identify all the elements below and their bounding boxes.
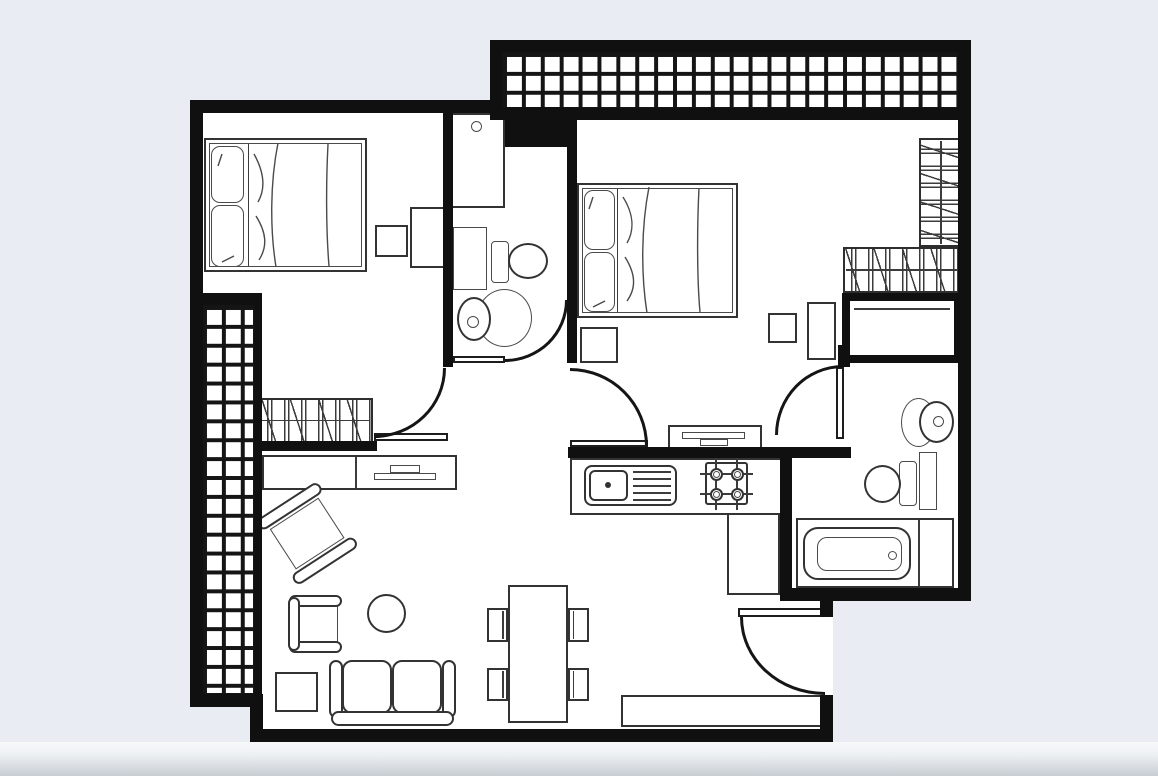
sofa-backrest <box>331 711 454 726</box>
wc-door-leaf <box>453 356 505 363</box>
dining-chair <box>487 668 508 701</box>
tv-icon <box>700 439 728 446</box>
wall <box>190 694 263 707</box>
chair-back <box>502 611 504 639</box>
stove-grate <box>736 457 738 510</box>
toilet-bathroom-tank <box>899 461 917 506</box>
wall <box>820 695 833 742</box>
sofa-armrest <box>329 660 343 718</box>
dining-chair <box>568 668 589 701</box>
square-table <box>275 672 318 712</box>
entrance-door-leaf <box>738 608 825 617</box>
sink-wc-drain <box>467 316 479 328</box>
wall <box>202 293 262 305</box>
balcony-top-tiles <box>502 52 958 108</box>
wall <box>567 113 577 363</box>
toilet-wc-tank <box>491 241 509 283</box>
wall <box>443 113 453 367</box>
armchair-backrest <box>288 597 300 651</box>
bookshelf-rail <box>262 420 370 422</box>
stove-grate <box>700 493 753 495</box>
tv-icon <box>682 432 745 439</box>
nightstand <box>580 327 618 363</box>
wardrobe-horizontal-rail <box>846 269 960 271</box>
dining-chair <box>487 608 508 642</box>
nightstand <box>375 225 408 257</box>
toilet-wc-bowl <box>508 243 548 279</box>
dining-table <box>508 585 568 723</box>
sofa-cushion <box>342 660 392 714</box>
sofa-armrest <box>442 660 456 718</box>
chair-back <box>573 611 575 639</box>
dresser <box>410 207 445 268</box>
chair-back <box>573 671 575 698</box>
wall <box>254 303 262 694</box>
wardrobe-vertical-rail <box>940 141 942 244</box>
kitchen-counter <box>727 513 780 595</box>
armchair-seat <box>298 605 338 645</box>
entry-console <box>621 695 827 727</box>
round-table <box>367 594 406 633</box>
wall <box>780 588 971 601</box>
wall <box>958 40 971 601</box>
page-bottom-band <box>0 742 1158 776</box>
wall <box>490 40 971 52</box>
tv-sideboard-divider <box>355 457 357 488</box>
wall <box>250 729 833 742</box>
washing-machine-door <box>471 121 482 132</box>
kitchen-sink-drainer-line <box>633 485 671 487</box>
dining-chair <box>568 608 589 642</box>
stool <box>768 313 797 343</box>
floor-plan <box>0 0 1158 776</box>
burner-inner <box>713 491 720 498</box>
bed-right-blanket-folds <box>577 183 738 318</box>
wall <box>490 40 502 120</box>
burner-inner <box>734 491 741 498</box>
kitchen-sink-drain <box>605 482 611 488</box>
kitchen-sink-drainer-line <box>633 492 671 494</box>
bathtub-drain <box>888 551 897 560</box>
wall <box>568 447 851 458</box>
wall <box>190 100 203 707</box>
sink-bathroom-drain <box>933 416 944 427</box>
stove-grate <box>715 457 717 510</box>
duct <box>919 452 937 510</box>
burner-inner <box>734 471 741 478</box>
kitchen-sink-drainer-line <box>633 471 671 473</box>
burner-inner <box>713 471 720 478</box>
kitchen-sink-drainer-line <box>633 478 671 480</box>
kitchen-sink-drainer-line <box>633 499 671 501</box>
wall <box>259 441 377 451</box>
closet-rail <box>854 308 950 310</box>
wall <box>190 100 502 113</box>
bed-left-blanket-folds <box>204 138 367 272</box>
wall <box>505 107 573 147</box>
closet <box>842 293 962 363</box>
toilet-bathroom-bowl <box>864 465 901 503</box>
wall <box>820 601 833 617</box>
balcony-left-tiles <box>202 305 254 694</box>
chair-back <box>502 671 504 698</box>
wall <box>780 451 792 601</box>
tv-icon <box>374 473 436 480</box>
stove-grate <box>700 473 753 475</box>
wall <box>838 345 850 367</box>
duct <box>453 227 487 290</box>
sofa-cushion <box>392 660 442 714</box>
side-table <box>807 302 836 360</box>
bathtub-deck-line <box>918 520 920 586</box>
tv-icon <box>390 465 420 473</box>
